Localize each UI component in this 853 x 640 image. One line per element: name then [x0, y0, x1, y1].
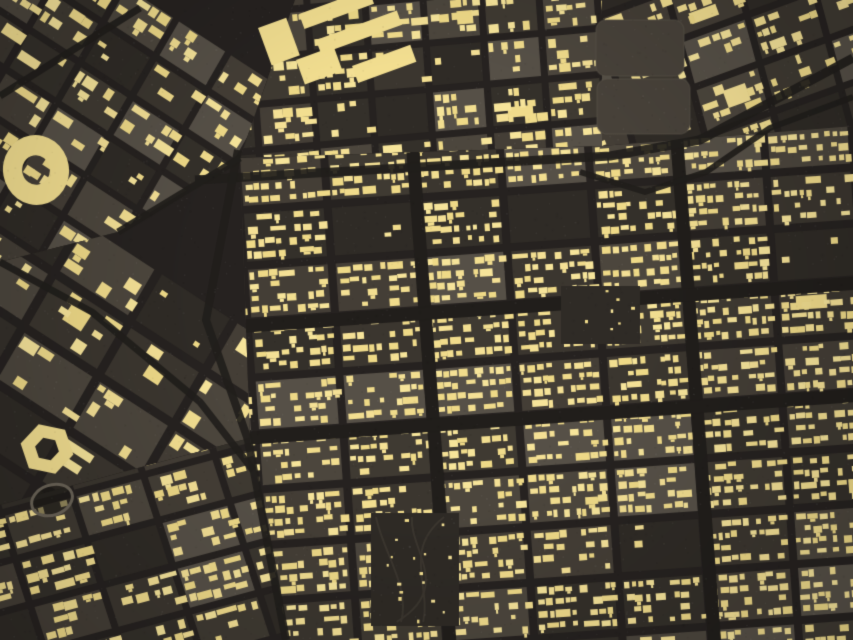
map-canvas — [0, 0, 853, 640]
satellite-building-footprint-map — [0, 0, 853, 640]
